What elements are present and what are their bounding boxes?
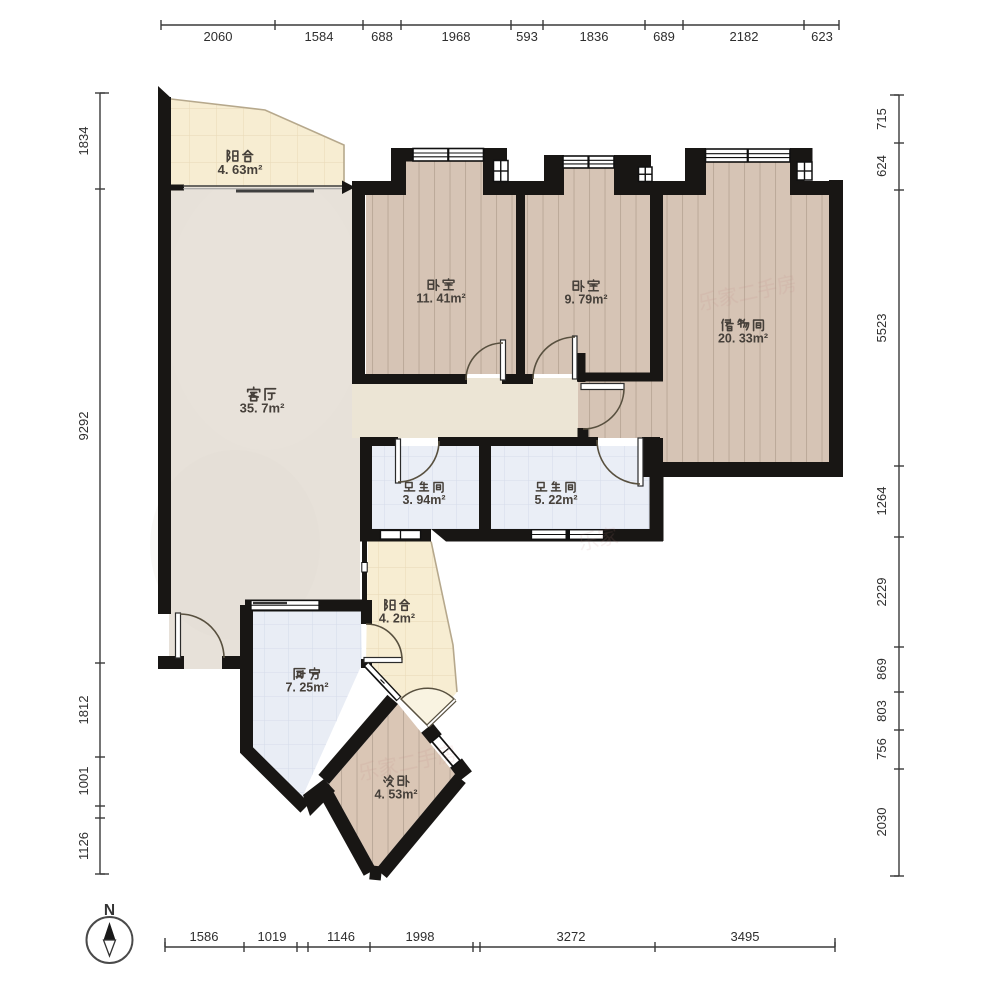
svg-text:9. 79m²: 9. 79m² — [564, 292, 607, 306]
svg-text:3. 94m²: 3. 94m² — [402, 493, 445, 507]
svg-text:1812: 1812 — [76, 696, 91, 725]
svg-text:3495: 3495 — [731, 929, 760, 944]
svg-text:1264: 1264 — [874, 487, 889, 516]
svg-text:11. 41m²: 11. 41m² — [416, 291, 465, 305]
svg-text:35. 7m²: 35. 7m² — [240, 401, 285, 416]
svg-text:2182: 2182 — [730, 29, 759, 44]
svg-text:4. 53m²: 4. 53m² — [374, 787, 417, 801]
svg-text:688: 688 — [371, 29, 393, 44]
svg-text:1586: 1586 — [190, 929, 219, 944]
svg-text:1001: 1001 — [76, 767, 91, 796]
svg-text:2229: 2229 — [874, 578, 889, 607]
svg-text:756: 756 — [874, 738, 889, 760]
svg-text:715: 715 — [874, 108, 889, 130]
svg-text:N: N — [104, 902, 115, 919]
svg-text:624: 624 — [874, 155, 889, 177]
svg-text:1019: 1019 — [258, 929, 287, 944]
svg-text:5. 22m²: 5. 22m² — [534, 493, 577, 507]
svg-text:4. 63m²: 4. 63m² — [218, 162, 263, 177]
svg-text:3272: 3272 — [557, 929, 586, 944]
svg-text:20. 33m²: 20. 33m² — [718, 332, 768, 346]
svg-text:4. 2m²: 4. 2m² — [379, 611, 415, 625]
svg-text:1836: 1836 — [580, 29, 609, 44]
svg-text:593: 593 — [516, 29, 538, 44]
svg-text:869: 869 — [874, 658, 889, 680]
svg-text:9292: 9292 — [76, 412, 91, 441]
svg-text:5523: 5523 — [874, 314, 889, 343]
svg-text:2060: 2060 — [204, 29, 233, 44]
svg-text:1834: 1834 — [76, 127, 91, 156]
svg-text:1146: 1146 — [327, 929, 355, 944]
svg-text:623: 623 — [811, 29, 833, 44]
svg-text:1968: 1968 — [442, 29, 471, 44]
svg-text:689: 689 — [653, 29, 675, 44]
svg-text:1998: 1998 — [406, 929, 435, 944]
svg-text:803: 803 — [874, 700, 889, 722]
svg-text:1584: 1584 — [305, 29, 334, 44]
svg-text:1126: 1126 — [76, 832, 91, 860]
svg-text:7. 25m²: 7. 25m² — [285, 680, 328, 694]
svg-text:2030: 2030 — [874, 808, 889, 837]
